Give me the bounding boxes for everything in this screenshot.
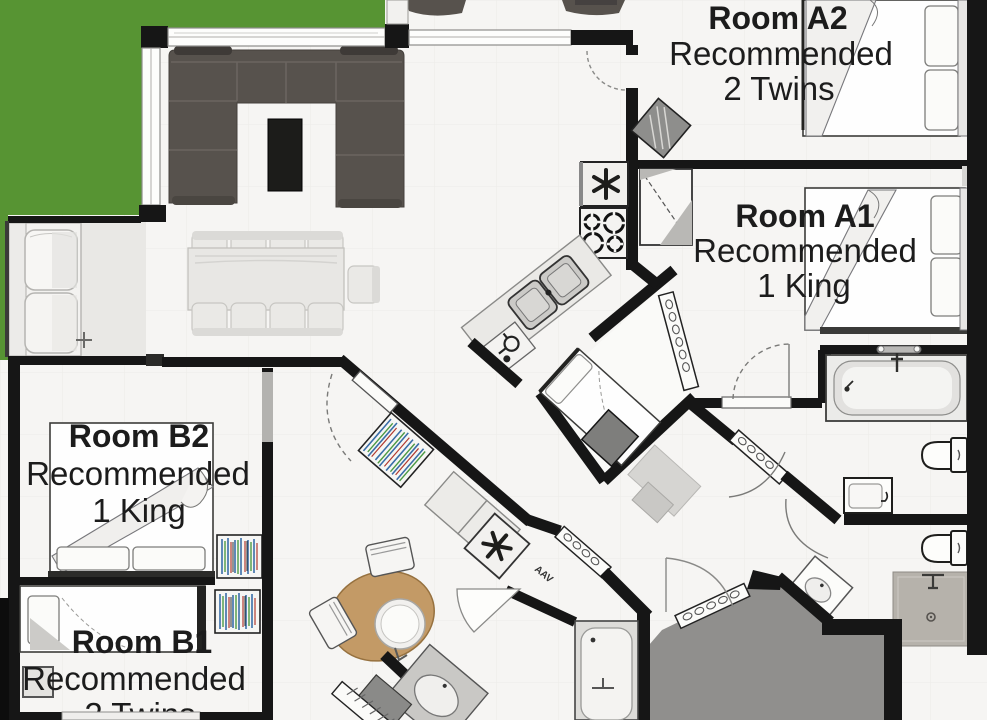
svg-text:1 King: 1 King: [757, 267, 851, 304]
svg-text:Recommended: Recommended: [669, 35, 893, 72]
svg-text:Room B1: Room B1: [72, 624, 212, 660]
svg-text:Recommended: Recommended: [22, 660, 246, 697]
svg-text:2 Twins: 2 Twins: [723, 70, 834, 107]
svg-text:1 King: 1 King: [92, 492, 186, 529]
svg-text:Recommended: Recommended: [693, 232, 917, 269]
svg-text:Recommended: Recommended: [26, 455, 250, 492]
svg-text:Room A2: Room A2: [708, 0, 847, 36]
svg-text:Room A1: Room A1: [735, 198, 874, 234]
svg-text:Room B2: Room B2: [69, 418, 209, 454]
